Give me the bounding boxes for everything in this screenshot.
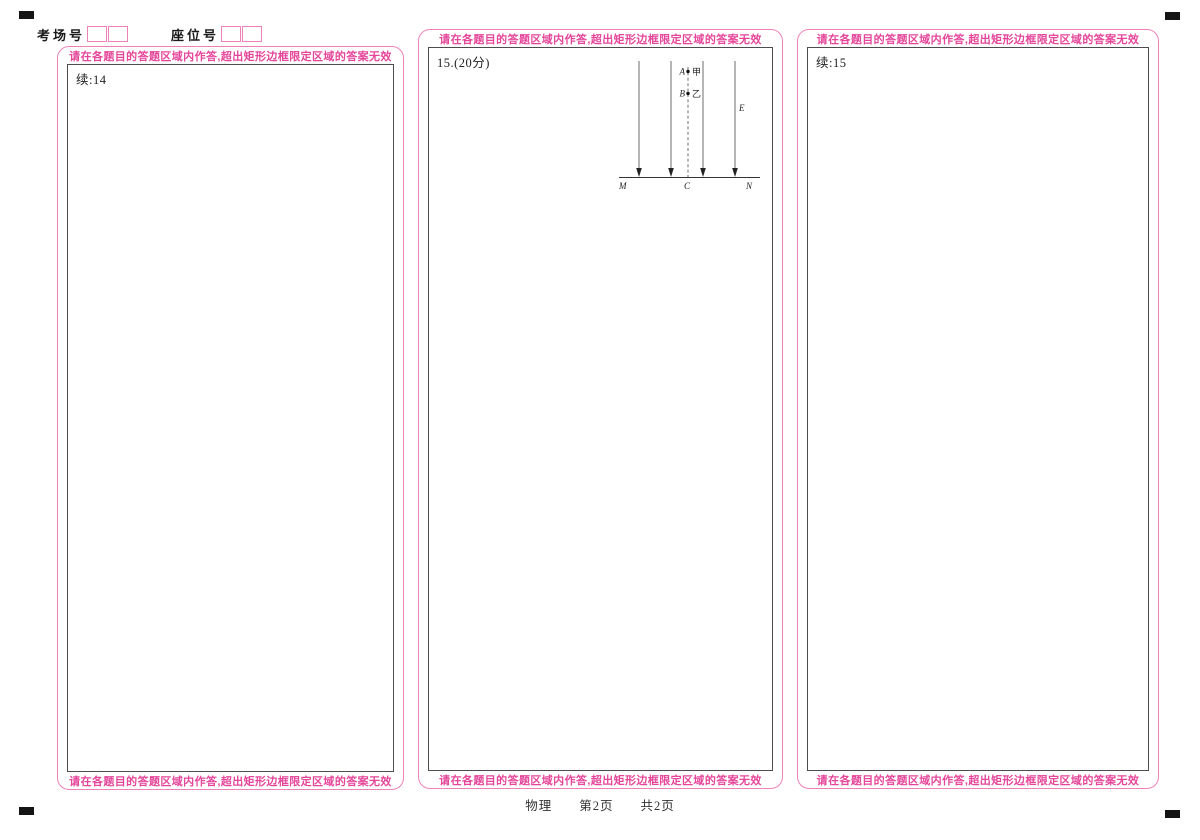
continuation-note-15: 续:15: [816, 52, 846, 71]
exam-room-boxes: [87, 26, 129, 42]
warning-banner-bottom-1: 请在各题目的答题区域内作答,超出矩形边框限定区域的答案无效: [67, 772, 394, 789]
field-lines: [639, 61, 735, 171]
answer-column-3: 请在各题目的答题区域内作答,超出矩形边框限定区域的答案无效 续:15 请在各题目…: [797, 29, 1159, 789]
seat-label: 座位号: [171, 25, 219, 44]
footer-subject: 物理: [525, 795, 552, 814]
question-15-label: 15.(20分): [437, 52, 490, 71]
point-b-label: B: [680, 89, 686, 99]
warning-banner-top-2: 请在各题目的答题区域内作答,超出矩形边框限定区域的答案无效: [428, 30, 773, 47]
answer-area-3[interactable]: 续:15: [807, 47, 1149, 771]
point-a-label: A: [679, 67, 686, 77]
seat-boxes: [221, 26, 263, 42]
answer-area-2[interactable]: 15.(20分) A 甲 B: [428, 47, 773, 771]
point-b-dot: [686, 92, 689, 95]
field-arrowheads: [636, 168, 738, 177]
exam-room-digit-box-1[interactable]: [87, 26, 107, 42]
warning-banner-bottom-3: 请在各题目的答题区域内作答,超出矩形边框限定区域的答案无效: [807, 771, 1149, 788]
page-footer: 物理 第2页 共2页: [0, 795, 1200, 814]
answer-column-2: 请在各题目的答题区域内作答,超出矩形边框限定区域的答案无效 15.(20分): [418, 29, 783, 789]
seat-digit-box-1[interactable]: [221, 26, 241, 42]
footer-page-total: 共2页: [641, 795, 675, 814]
electric-field-diagram: A 甲 B 乙 E M C N: [614, 59, 766, 199]
field-strength-label: E: [738, 103, 745, 113]
baseline-left-label: M: [618, 181, 627, 191]
continuation-note-14: 续:14: [76, 69, 106, 88]
answer-area-1[interactable]: 续:14: [67, 64, 394, 772]
exam-room-label: 考场号: [37, 25, 85, 44]
answer-column-1: 请在各题目的答题区域内作答,超出矩形边框限定区域的答案无效 续:14 请在各题目…: [57, 46, 404, 790]
registration-mark-top-left: [19, 11, 34, 19]
exam-room-digit-box-2[interactable]: [108, 26, 128, 42]
warning-banner-top-3: 请在各题目的答题区域内作答,超出矩形边框限定区域的答案无效: [807, 30, 1149, 47]
warning-banner-bottom-2: 请在各题目的答题区域内作答,超出矩形边框限定区域的答案无效: [428, 771, 773, 788]
warning-banner-top-1: 请在各题目的答题区域内作答,超出矩形边框限定区域的答案无效: [67, 47, 394, 64]
point-b-name: 乙: [692, 89, 701, 99]
seat-digit-box-2[interactable]: [242, 26, 262, 42]
point-a-name: 甲: [692, 67, 701, 77]
point-a-dot: [686, 70, 689, 73]
footer-page-number: 第2页: [579, 795, 613, 814]
registration-mark-top-right: [1165, 12, 1180, 20]
baseline-right-label: N: [745, 181, 753, 191]
baseline-center-label: C: [684, 181, 691, 191]
candidate-id-row: 考场号 座位号: [37, 25, 263, 43]
